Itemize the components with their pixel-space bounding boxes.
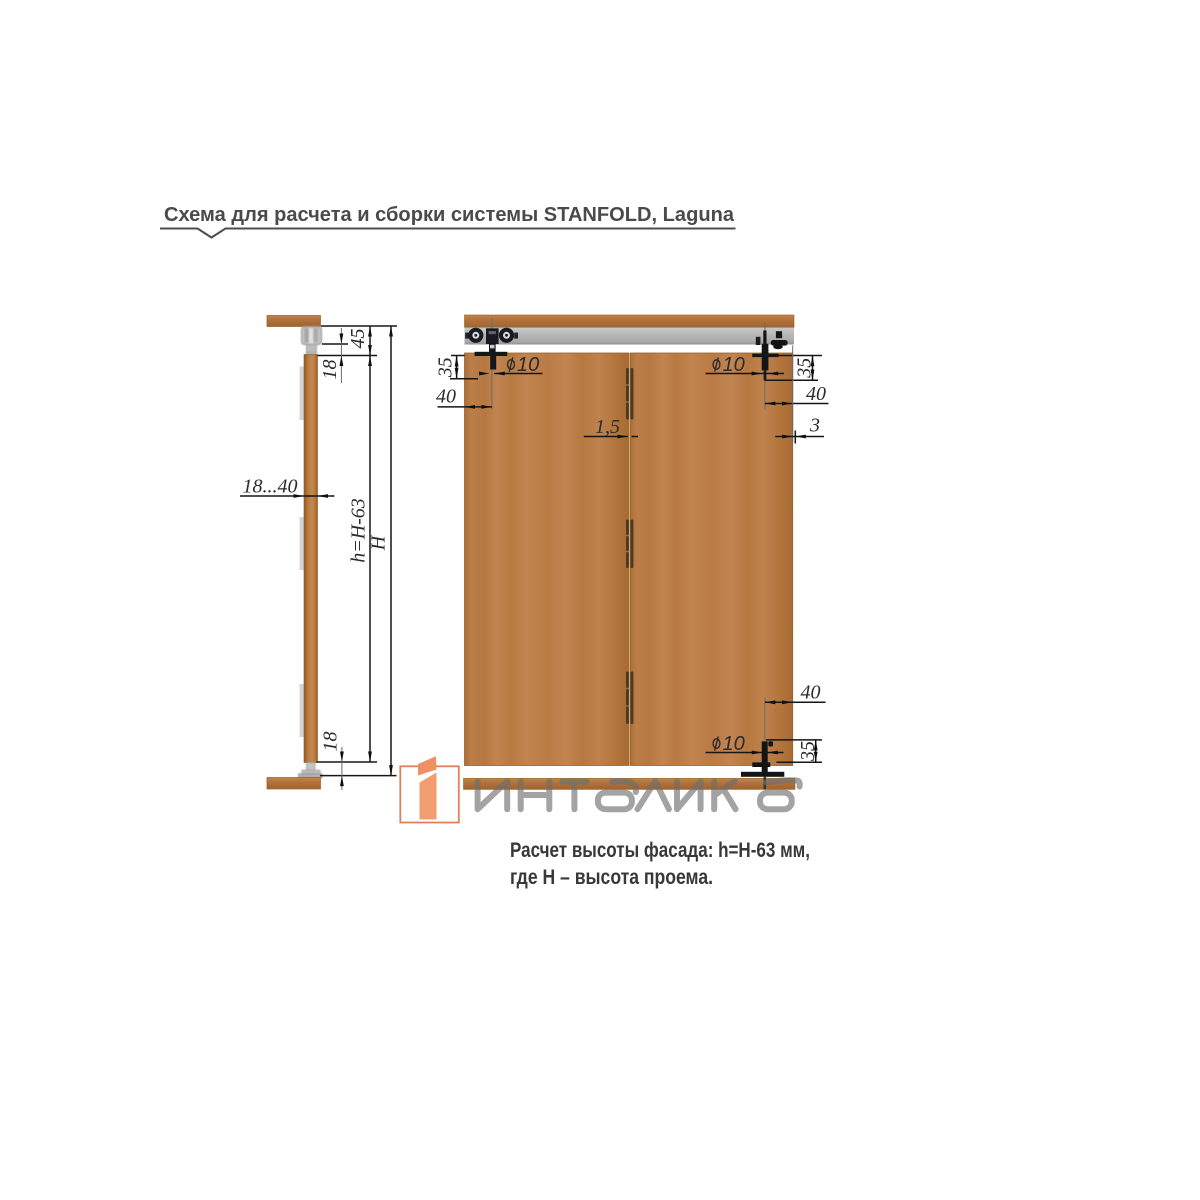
svg-text:10: 10	[723, 733, 745, 755]
svg-text:10: 10	[517, 354, 539, 376]
svg-text:3: 3	[809, 415, 820, 437]
svg-text:35: 35	[435, 357, 457, 378]
svg-text:35: 35	[797, 741, 819, 762]
svg-text:H: H	[368, 534, 390, 551]
svg-text:40: 40	[806, 383, 826, 405]
svg-text:40: 40	[436, 386, 456, 408]
svg-text:45: 45	[347, 329, 369, 349]
svg-text:1,5: 1,5	[595, 416, 620, 438]
svg-text:18: 18	[320, 732, 342, 752]
svg-text:18...40: 18...40	[243, 476, 298, 498]
svg-text:35: 35	[794, 358, 816, 379]
svg-text:где Н – высота проема.: где Н – высота проема.	[510, 866, 713, 889]
svg-text:h=H-63: h=H-63	[348, 498, 370, 563]
svg-text:18: 18	[319, 360, 341, 380]
svg-text:40: 40	[801, 682, 821, 704]
svg-text:10: 10	[723, 354, 745, 376]
svg-text:Расчет высоты фасада: h=H-63 м: Расчет высоты фасада: h=H-63 мм,	[510, 839, 810, 862]
svg-text:Схема для расчета и сборки сис: Схема для расчета и сборки системы STANF…	[164, 204, 735, 226]
